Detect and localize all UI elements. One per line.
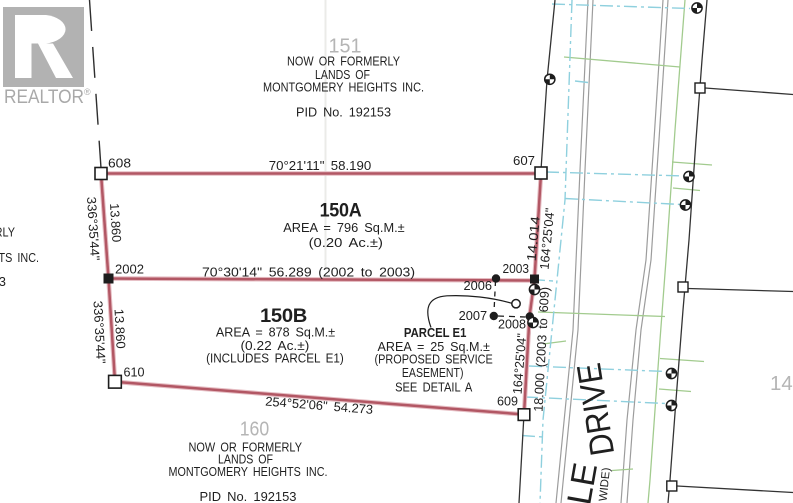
svg-text:13.860: 13.860 <box>112 308 129 349</box>
svg-text:147: 147 <box>770 372 793 395</box>
svg-text:MONTGOMERY HEIGHTS INC.: MONTGOMERY HEIGHTS INC. <box>263 80 424 95</box>
svg-text:2007: 2007 <box>459 308 488 323</box>
svg-text:SEE DETAIL A: SEE DETAIL A <box>395 379 473 394</box>
svg-text:608: 608 <box>108 156 131 171</box>
svg-text:PID No. 192153: PID No. 192153 <box>296 105 391 120</box>
svg-text:EASEMENT): EASEMENT) <box>402 365 464 380</box>
svg-text:PID No. 192153: PID No. 192153 <box>0 274 6 289</box>
svg-text:2008: 2008 <box>498 317 526 332</box>
svg-text:610: 610 <box>124 365 145 380</box>
svg-text:PID No. 192153: PID No. 192153 <box>200 489 297 503</box>
svg-text:NOW OR FORMERLY: NOW OR FORMERLY <box>0 225 15 240</box>
svg-text:PARCEL E1: PARCEL E1 <box>404 325 467 340</box>
svg-text:®: ® <box>84 87 91 97</box>
svg-text:160: 160 <box>240 417 270 440</box>
svg-text:2006: 2006 <box>464 278 493 293</box>
svg-text:2003: 2003 <box>503 261 530 276</box>
svg-text:AREA = 796 Sq.M.±: AREA = 796 Sq.M.± <box>283 220 405 235</box>
svg-text:(0.20 Ac.±): (0.20 Ac.±) <box>309 235 383 250</box>
svg-text:609: 609 <box>497 394 518 409</box>
svg-text:REALTOR: REALTOR <box>4 87 84 108</box>
svg-text:70°30'14" 56.289 (2002 to 2003: 70°30'14" 56.289 (2002 to 2003) <box>202 264 415 279</box>
svg-text:150A: 150A <box>320 201 362 222</box>
svg-text:(INCLUDES PARCEL E1): (INCLUDES PARCEL E1) <box>206 350 344 365</box>
svg-text:MONTGOMERY HEIGHTS INC.: MONTGOMERY HEIGHTS INC. <box>0 250 39 265</box>
svg-text:607: 607 <box>513 153 535 168</box>
svg-text:70°21'11" 58.190: 70°21'11" 58.190 <box>269 158 371 173</box>
svg-text:MONTGOMERY HEIGHTS INC.: MONTGOMERY HEIGHTS INC. <box>169 464 328 479</box>
svg-text:13.860: 13.860 <box>107 203 124 243</box>
svg-text:2002: 2002 <box>115 262 144 277</box>
